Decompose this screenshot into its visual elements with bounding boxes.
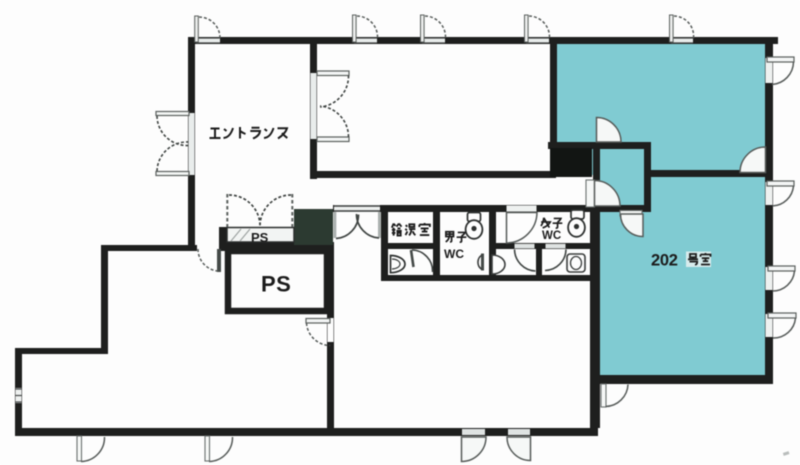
- svg-text:WC: WC: [542, 230, 561, 242]
- svg-text:WC: WC: [444, 247, 464, 261]
- svg-text:PS: PS: [261, 272, 291, 297]
- svg-text:202: 202: [651, 252, 678, 270]
- svg-text:PS: PS: [251, 230, 269, 245]
